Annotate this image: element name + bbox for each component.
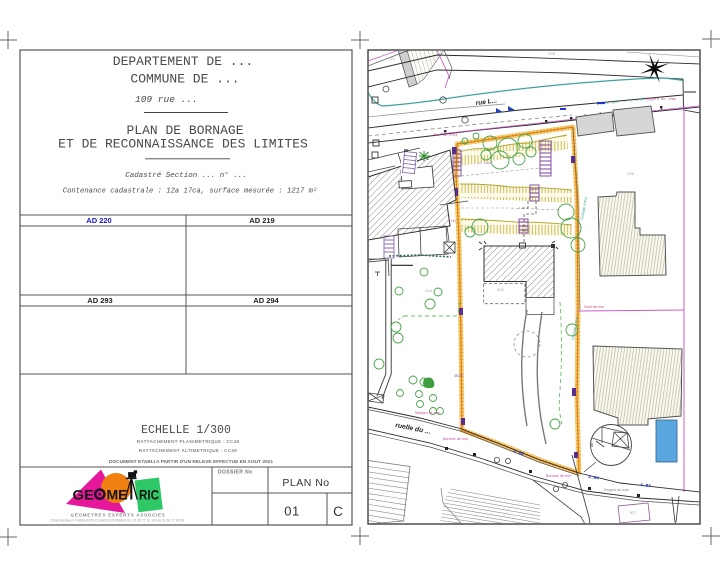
svg-text:DEPARTEMENT DE ...: DEPARTEMENT DE ... — [113, 54, 253, 69]
svg-text:Mur de clot: Mur de clot — [434, 133, 458, 138]
svg-text:C: C — [333, 504, 343, 519]
svg-text:COMMUNE DE ...: COMMUNE DE ... — [130, 72, 239, 87]
svg-text:45.20: 45.20 — [454, 374, 463, 378]
svg-text:GEOMETRES EXPERTS ASSOCIES: GEOMETRES EXPERTS ASSOCIES — [70, 513, 165, 518]
svg-text:3 Rue Bordeaux THIENVILPN COUR: 3 Rue Bordeaux THIENVILPN COURCOUPONNES … — [50, 519, 184, 523]
svg-text:4.84: 4.84 — [640, 482, 652, 489]
svg-text:Bordure de mur: Bordure de mur — [546, 474, 572, 478]
svg-text:DOCUMENT ETABLI A PARTIR D'UN: DOCUMENT ETABLI A PARTIR D'UN RELEVE EFF… — [109, 459, 273, 465]
svg-text:ME: ME — [107, 487, 128, 503]
svg-text:109 rue ...: 109 rue ... — [135, 94, 198, 105]
svg-text:AD 294: AD 294 — [253, 296, 279, 305]
svg-text:Regard du reau: Regard du reau — [604, 488, 629, 492]
svg-text:294: 294 — [425, 290, 433, 294]
svg-text:299: 299 — [548, 53, 556, 57]
svg-text:Regard du reau: Regard du reau — [646, 97, 676, 102]
svg-text:GE: GE — [73, 487, 95, 503]
svg-text:Mitoyen de mur: Mitoyen de mur — [415, 411, 441, 415]
svg-text:M: M — [404, 148, 408, 153]
svg-text:AD 293: AD 293 — [87, 296, 112, 305]
svg-text:RIC: RIC — [139, 487, 159, 503]
svg-text:Cadastré Section ... n° ...: Cadastré Section ... n° ... — [125, 171, 247, 180]
svg-text:01: 01 — [284, 504, 299, 519]
svg-text:517: 517 — [630, 511, 636, 515]
svg-text:296: 296 — [627, 173, 635, 177]
svg-text:55: 55 — [390, 58, 395, 62]
svg-text:Bordure de mur: Bordure de mur — [443, 437, 469, 441]
svg-text:295: 295 — [497, 289, 505, 293]
svg-text:RATTACHEMENT ALTIMETRIQUE : CC: RATTACHEMENT ALTIMETRIQUE : CC49 — [139, 448, 237, 453]
svg-text:AD 219: AD 219 — [249, 216, 274, 225]
svg-text:DOSSIER No: DOSSIER No — [218, 470, 253, 476]
svg-text:AD 220: AD 220 — [86, 216, 111, 225]
svg-text:Seuil de mur: Seuil de mur — [584, 305, 605, 309]
svg-text:ECHELLE 1/300: ECHELLE 1/300 — [141, 424, 231, 437]
svg-text:RATTACHEMENT PLANIMETRIQUE : C: RATTACHEMENT PLANIMETRIQUE : CC49 — [137, 439, 240, 444]
svg-text:PLAN No: PLAN No — [282, 477, 329, 489]
svg-text:Contenance cadastrale : 12a 17: Contenance cadastrale : 12a 17ca, surfac… — [63, 187, 317, 196]
svg-text:ET DE RECONNAISSANCE DES LIMIT: ET DE RECONNAISSANCE DES LIMITES — [58, 137, 308, 152]
